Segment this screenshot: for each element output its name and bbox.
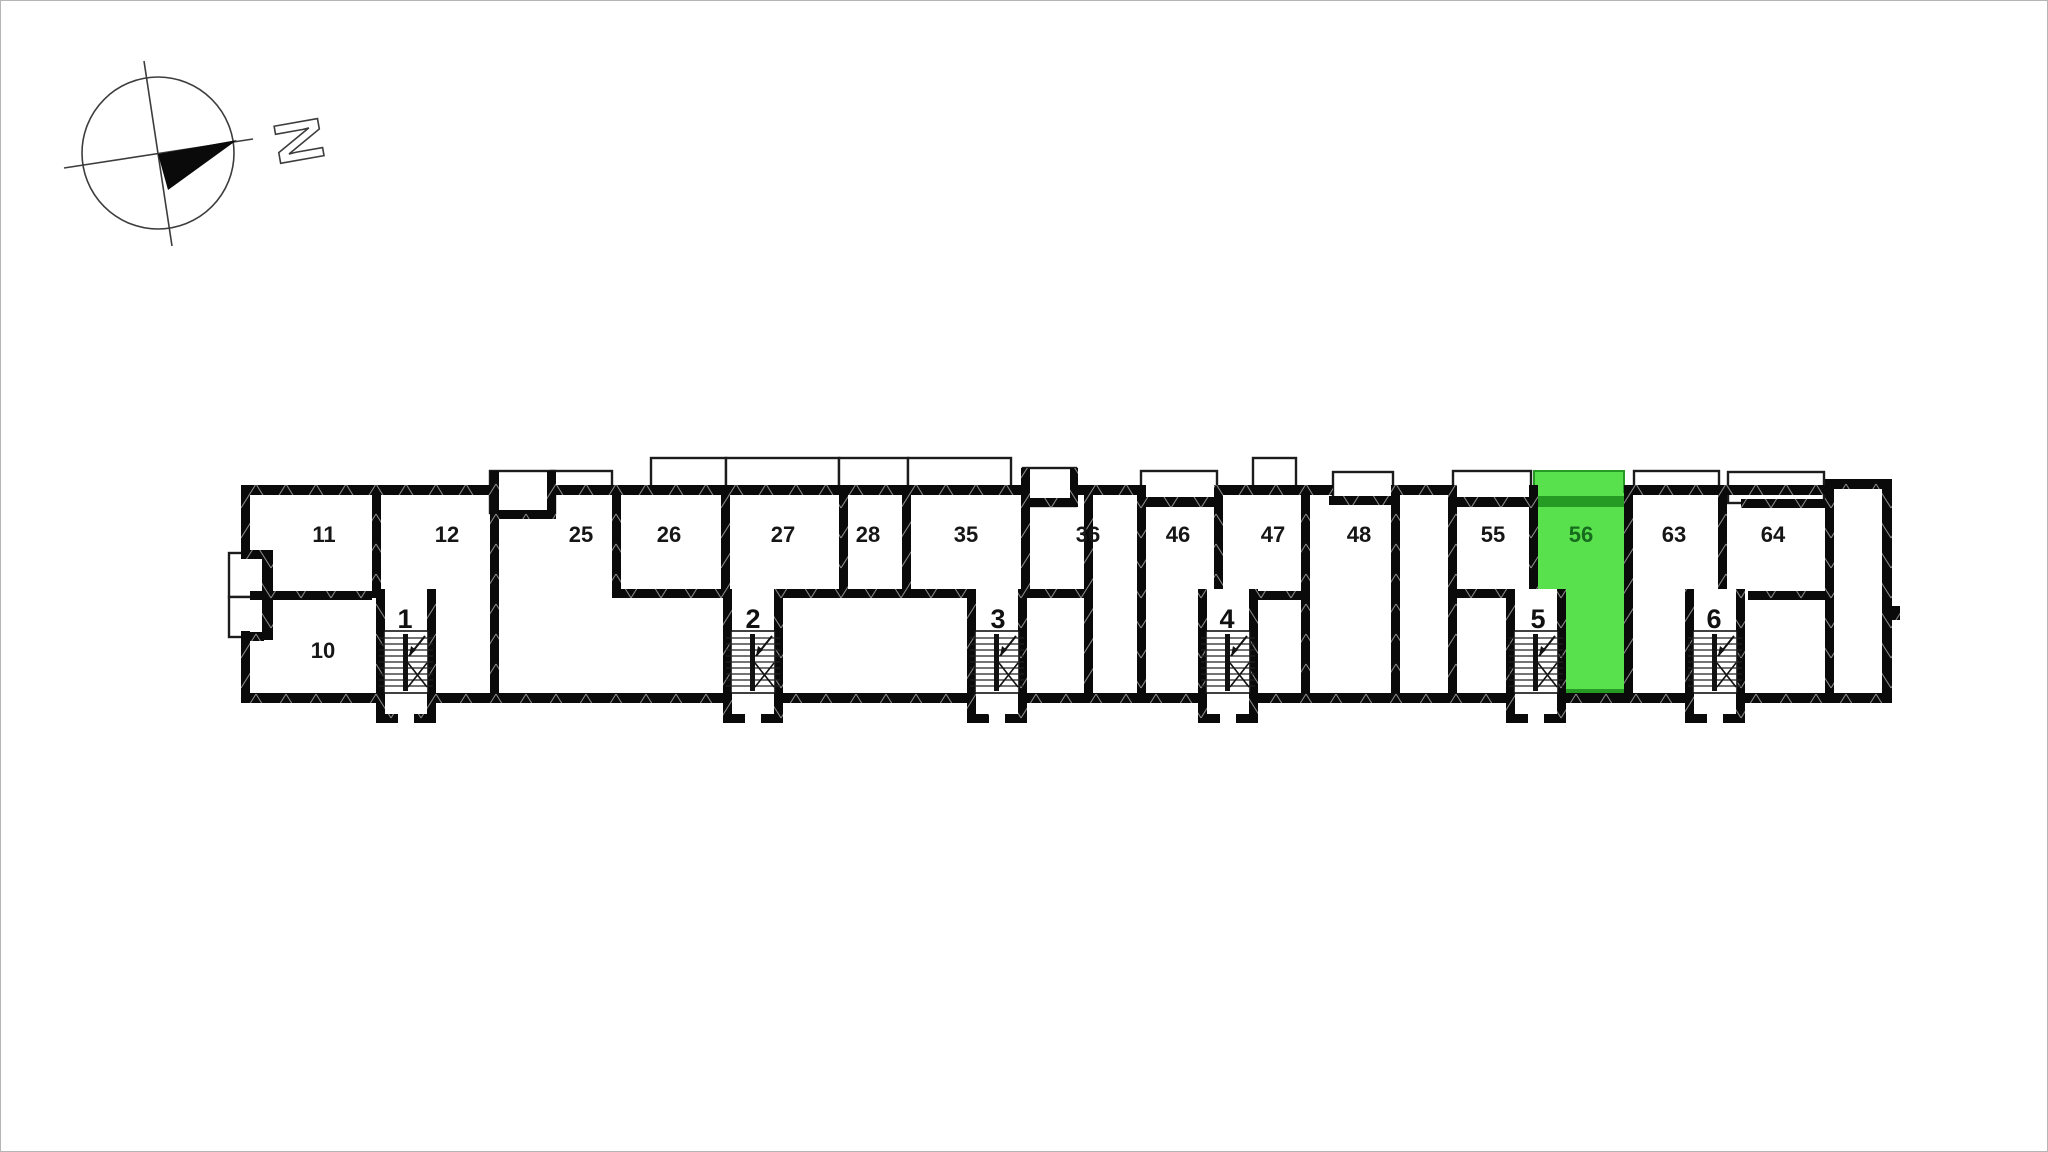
unit-label-63[interactable]: 63 bbox=[1662, 522, 1686, 547]
balcony bbox=[1333, 472, 1393, 499]
balcony bbox=[908, 458, 1011, 489]
entry-porch bbox=[490, 471, 555, 513]
stairwell-3: 3 bbox=[967, 589, 1027, 723]
stairs-icon bbox=[726, 631, 780, 693]
stairs-icon bbox=[1201, 631, 1255, 693]
stairwell-6: 6 bbox=[1685, 589, 1745, 723]
stairwell-4: 4 bbox=[1198, 589, 1258, 723]
stairwell-label: 2 bbox=[745, 604, 760, 634]
unit-label-64[interactable]: 64 bbox=[1761, 522, 1786, 547]
stairs-icon bbox=[379, 631, 433, 693]
stairwell-label: 5 bbox=[1530, 604, 1545, 634]
unit-label-47[interactable]: 47 bbox=[1261, 522, 1285, 547]
stairwell-label: 4 bbox=[1219, 604, 1234, 634]
unit-56-wall-band bbox=[1534, 496, 1624, 507]
balcony bbox=[1453, 471, 1531, 501]
floor-plan-drawing: N bbox=[1, 1, 2048, 1152]
balcony bbox=[1253, 458, 1296, 489]
stairwell-label: 3 bbox=[990, 604, 1005, 634]
unit-label-46[interactable]: 46 bbox=[1166, 522, 1190, 547]
unit-label-35[interactable]: 35 bbox=[954, 522, 978, 547]
balcony bbox=[839, 458, 908, 489]
balcony bbox=[229, 553, 265, 597]
stairwell-5: 5 bbox=[1506, 589, 1566, 723]
unit-label-27[interactable]: 27 bbox=[771, 522, 795, 547]
unit-label-11[interactable]: 11 bbox=[312, 522, 335, 547]
stairs-icon bbox=[1688, 631, 1742, 693]
unit-label-36[interactable]: 36 bbox=[1076, 522, 1100, 547]
unit-label-56[interactable]: 56 bbox=[1569, 522, 1593, 547]
balcony bbox=[651, 458, 726, 489]
unit-label-25[interactable]: 25 bbox=[569, 522, 593, 547]
unit-label-12[interactable]: 12 bbox=[435, 522, 459, 547]
stairwell-label: 1 bbox=[397, 604, 412, 634]
stairs-icon bbox=[970, 631, 1024, 693]
stairwell-2: 2 bbox=[723, 589, 783, 723]
unit-label-55[interactable]: 55 bbox=[1481, 522, 1505, 547]
balcony bbox=[726, 458, 839, 489]
unit-56-lower bbox=[1566, 595, 1624, 698]
unit-label-48[interactable]: 48 bbox=[1347, 522, 1371, 547]
unit-label-10[interactable]: 10 bbox=[311, 638, 335, 663]
stairs-icon bbox=[1509, 631, 1563, 693]
stairwell-1: 1 bbox=[376, 589, 436, 723]
unit-label-26[interactable]: 26 bbox=[657, 522, 681, 547]
unit-label-28[interactable]: 28 bbox=[856, 522, 880, 547]
stairwell-label: 6 bbox=[1706, 604, 1721, 634]
floor-plan-canvas: N bbox=[0, 0, 2048, 1152]
